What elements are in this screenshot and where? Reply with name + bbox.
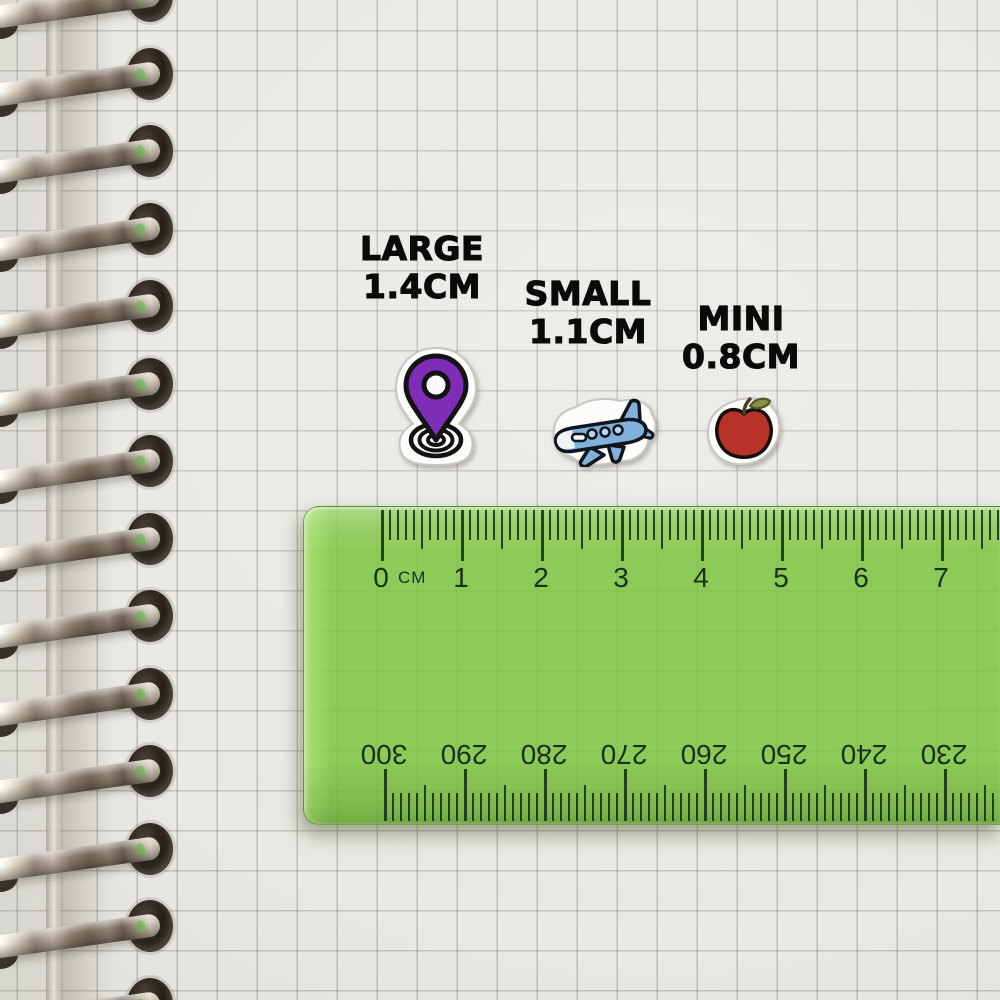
ruler-bottom-tick [600,793,602,821]
ruler-bottom-tick [728,793,730,821]
location-pin-sticker [386,345,486,467]
ruler-bottom-tick [608,793,610,821]
ruler-bottom-tick [864,769,867,821]
location-pin-icon [386,345,486,467]
ruler-bottom-tick [544,769,547,821]
ruler-bottom-tick [504,785,506,821]
ruler-bottom-tick [784,769,787,821]
airplane-sticker [548,397,658,467]
ruler-bottom-tick [416,793,418,821]
apple-icon [705,395,783,467]
ruler-bottom-tick [848,793,850,821]
ruler-bottom-tick [456,793,458,821]
ruler-bottom-tick [680,793,682,821]
ruler-bottom-tick [856,793,858,821]
binding-coil [0,60,162,109]
ruler-bottom-tick [552,793,554,821]
size-label-name: MINI [661,300,821,338]
notebook-photo: LARGE 1.4CM SMALL 1.1CM MINI 0.8CM [0,0,1000,1000]
ruler-bottom-tick [584,785,586,821]
ruler-bottom-ticks [304,507,1000,824]
ruler-bottom-tick [576,793,578,821]
binding-coil [0,138,162,187]
ruler-bottom-tick [944,769,947,821]
ruler-bottom-tick [472,793,474,821]
binding-coil [0,758,162,807]
size-label-value: 1.1CM [508,313,668,351]
ruler-bottom-tick [720,793,722,821]
ruler-bottom-tick [960,793,962,821]
ruler-bottom-tick [568,793,570,821]
ruler-bottom-tick [656,793,658,821]
ruler-bottom-tick [560,793,562,821]
ruler-bottom-tick [664,785,666,821]
ruler-bottom-tick [528,793,530,821]
ruler-bottom-tick [976,793,978,821]
ruler-bottom-tick [448,793,450,821]
ruler-bottom-tick [392,793,394,821]
ruler-bottom-tick [696,793,698,821]
ruler-bottom-tick [736,793,738,821]
ruler-bottom-tick [824,785,826,821]
ruler-bottom-tick [440,793,442,821]
ruler-bottom-tick [752,793,754,821]
ruler-bottom-tick [688,793,690,821]
binding-coil [0,215,162,264]
ruler-bottom-tick [424,785,426,821]
spiral-binding [0,0,210,1000]
ruler-bottom-tick [464,769,467,821]
size-label-value: 0.8CM [661,338,821,376]
ruler-bottom-tick [840,793,842,821]
ruler-bottom-tick [624,769,627,821]
size-label-name: LARGE [342,230,502,268]
ruler-bottom-tick [880,793,882,821]
ruler-bottom-tick [480,793,482,821]
ruler-bottom-tick [984,785,986,821]
ruler-bottom-tick [520,793,522,821]
size-label-small: SMALL 1.1CM [508,275,668,351]
size-label-name: SMALL [508,275,668,313]
ruler-bottom-tick [760,793,762,821]
apple-sticker [705,395,783,467]
ruler-bottom-tick [432,793,434,821]
ruler-bottom-tick [512,793,514,821]
size-label-value: 1.4CM [342,268,502,306]
ruler-bottom-tick [592,793,594,821]
ruler-bottom-tick [712,793,714,821]
binding-coil [0,525,162,574]
ruler-bottom-tick [488,793,490,821]
size-label-mini: MINI 0.8CM [661,300,821,376]
ruler-bottom-tick [640,793,642,821]
ruler-bottom-tick [408,793,410,821]
ruler-bottom-tick [496,793,498,821]
ruler-bottom-tick [768,793,770,821]
binding-coil [0,370,162,419]
ruler-bottom-tick [800,793,802,821]
ruler-bottom-tick [896,793,898,821]
ruler-bottom-tick [632,793,634,821]
binding-coil [0,293,162,342]
binding-coil [0,680,162,729]
ruler: CM 01234567 300290280270260250240230 [303,506,1000,825]
ruler-bottom-tick [536,793,538,821]
ruler-bottom-tick [912,793,914,821]
ruler-bottom-tick [384,769,387,821]
ruler-bottom-tick [616,793,618,821]
ruler-bottom-tick [992,793,994,821]
ruler-bottom-tick [792,793,794,821]
ruler-bottom-tick [648,793,650,821]
ruler-bottom-tick [928,793,930,821]
ruler-bottom-tick [968,793,970,821]
ruler-bottom-tick [920,793,922,821]
ruler-bottom-tick [776,793,778,821]
ruler-bottom-tick [904,785,906,821]
ruler-bottom-tick [872,793,874,821]
binding-coil [0,913,162,962]
ruler-bottom-tick [672,793,674,821]
ruler-bottom-tick [400,793,402,821]
ruler-bottom-tick [744,785,746,821]
ruler-bottom-tick [816,793,818,821]
binding-coil [0,835,162,884]
ruler-bottom-tick [832,793,834,821]
size-label-large: LARGE 1.4CM [342,230,502,306]
ruler-bottom-tick [952,793,954,821]
ruler-bottom-tick [888,793,890,821]
ruler-bottom-tick [936,793,938,821]
ruler-bottom-tick [704,769,707,821]
ruler-bottom-tick [808,793,810,821]
binding-coil [0,448,162,497]
airplane-icon [548,397,658,467]
binding-coil [0,603,162,652]
